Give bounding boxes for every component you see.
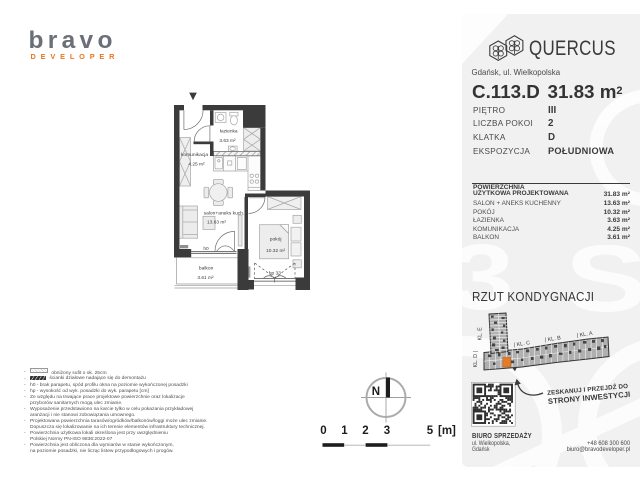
svg-text:komunikacja: komunikacja xyxy=(181,152,208,158)
svg-text:3.63 m²: 3.63 m² xyxy=(219,138,236,144)
svg-text:N: N xyxy=(372,386,380,398)
svg-text:salon+aneks kuch.: salon+aneks kuch. xyxy=(204,210,245,216)
svg-text:5: 5 xyxy=(427,425,434,437)
svg-text:[m]: [m] xyxy=(438,425,456,437)
svg-text:1: 1 xyxy=(341,425,348,437)
svg-text:pokój: pokój xyxy=(270,237,282,243)
svg-text:łazienka: łazienka xyxy=(220,128,238,134)
svg-text:balkon: balkon xyxy=(199,265,214,271)
svg-text:10.32 m²: 10.32 m² xyxy=(266,248,285,254)
svg-text:h0: h0 xyxy=(203,246,209,252)
svg-text:13.63 m²: 13.63 m² xyxy=(207,220,226,226)
svg-text:0: 0 xyxy=(320,425,326,437)
svg-text:2: 2 xyxy=(362,425,368,437)
svg-text:3: 3 xyxy=(384,425,390,437)
svg-text:3.61 m²: 3.61 m² xyxy=(197,275,214,281)
svg-text:4.25 m²: 4.25 m² xyxy=(188,162,205,168)
svg-text:| KL. B: | KL. B xyxy=(544,335,561,343)
svg-text:hp 33: hp 33 xyxy=(269,271,281,277)
svg-text:KL. E: KL. E xyxy=(478,326,484,340)
svg-text:| KL. C: | KL. C xyxy=(513,340,530,348)
svg-text:KL. D |: KL. D | xyxy=(473,351,479,367)
svg-text:| KL. A: | KL. A xyxy=(576,330,593,338)
